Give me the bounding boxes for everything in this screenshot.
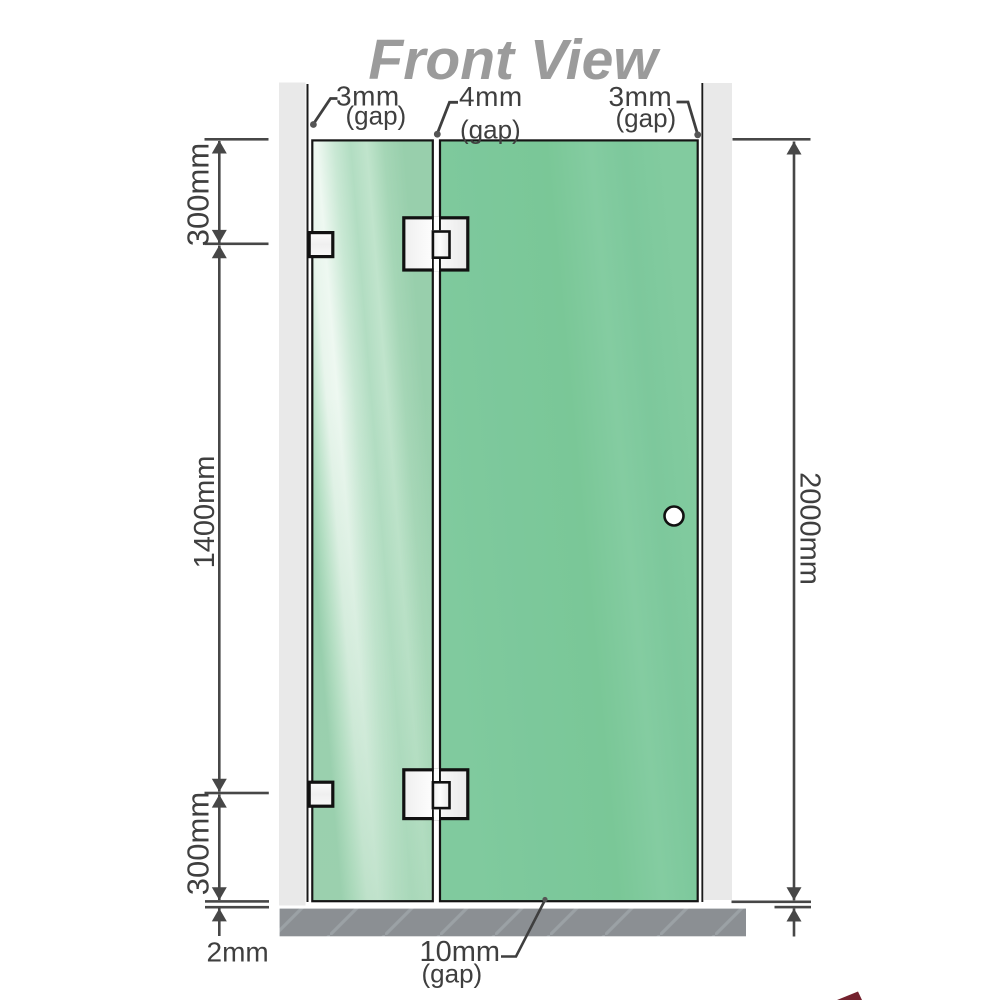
svg-text:2mm: 2mm [207,937,269,968]
svg-text:2000mm: 2000mm [793,472,825,585]
svg-text:(gap): (gap) [460,115,521,145]
svg-text:1400mm: 1400mm [189,456,221,569]
svg-text:(gap): (gap) [616,103,677,133]
svg-text:Front View: Front View [368,28,661,92]
svg-text:300mm: 300mm [180,143,215,246]
svg-text:300mm: 300mm [180,792,215,895]
svg-text:(gap): (gap) [422,959,483,989]
svg-text:(gap): (gap) [346,101,407,131]
